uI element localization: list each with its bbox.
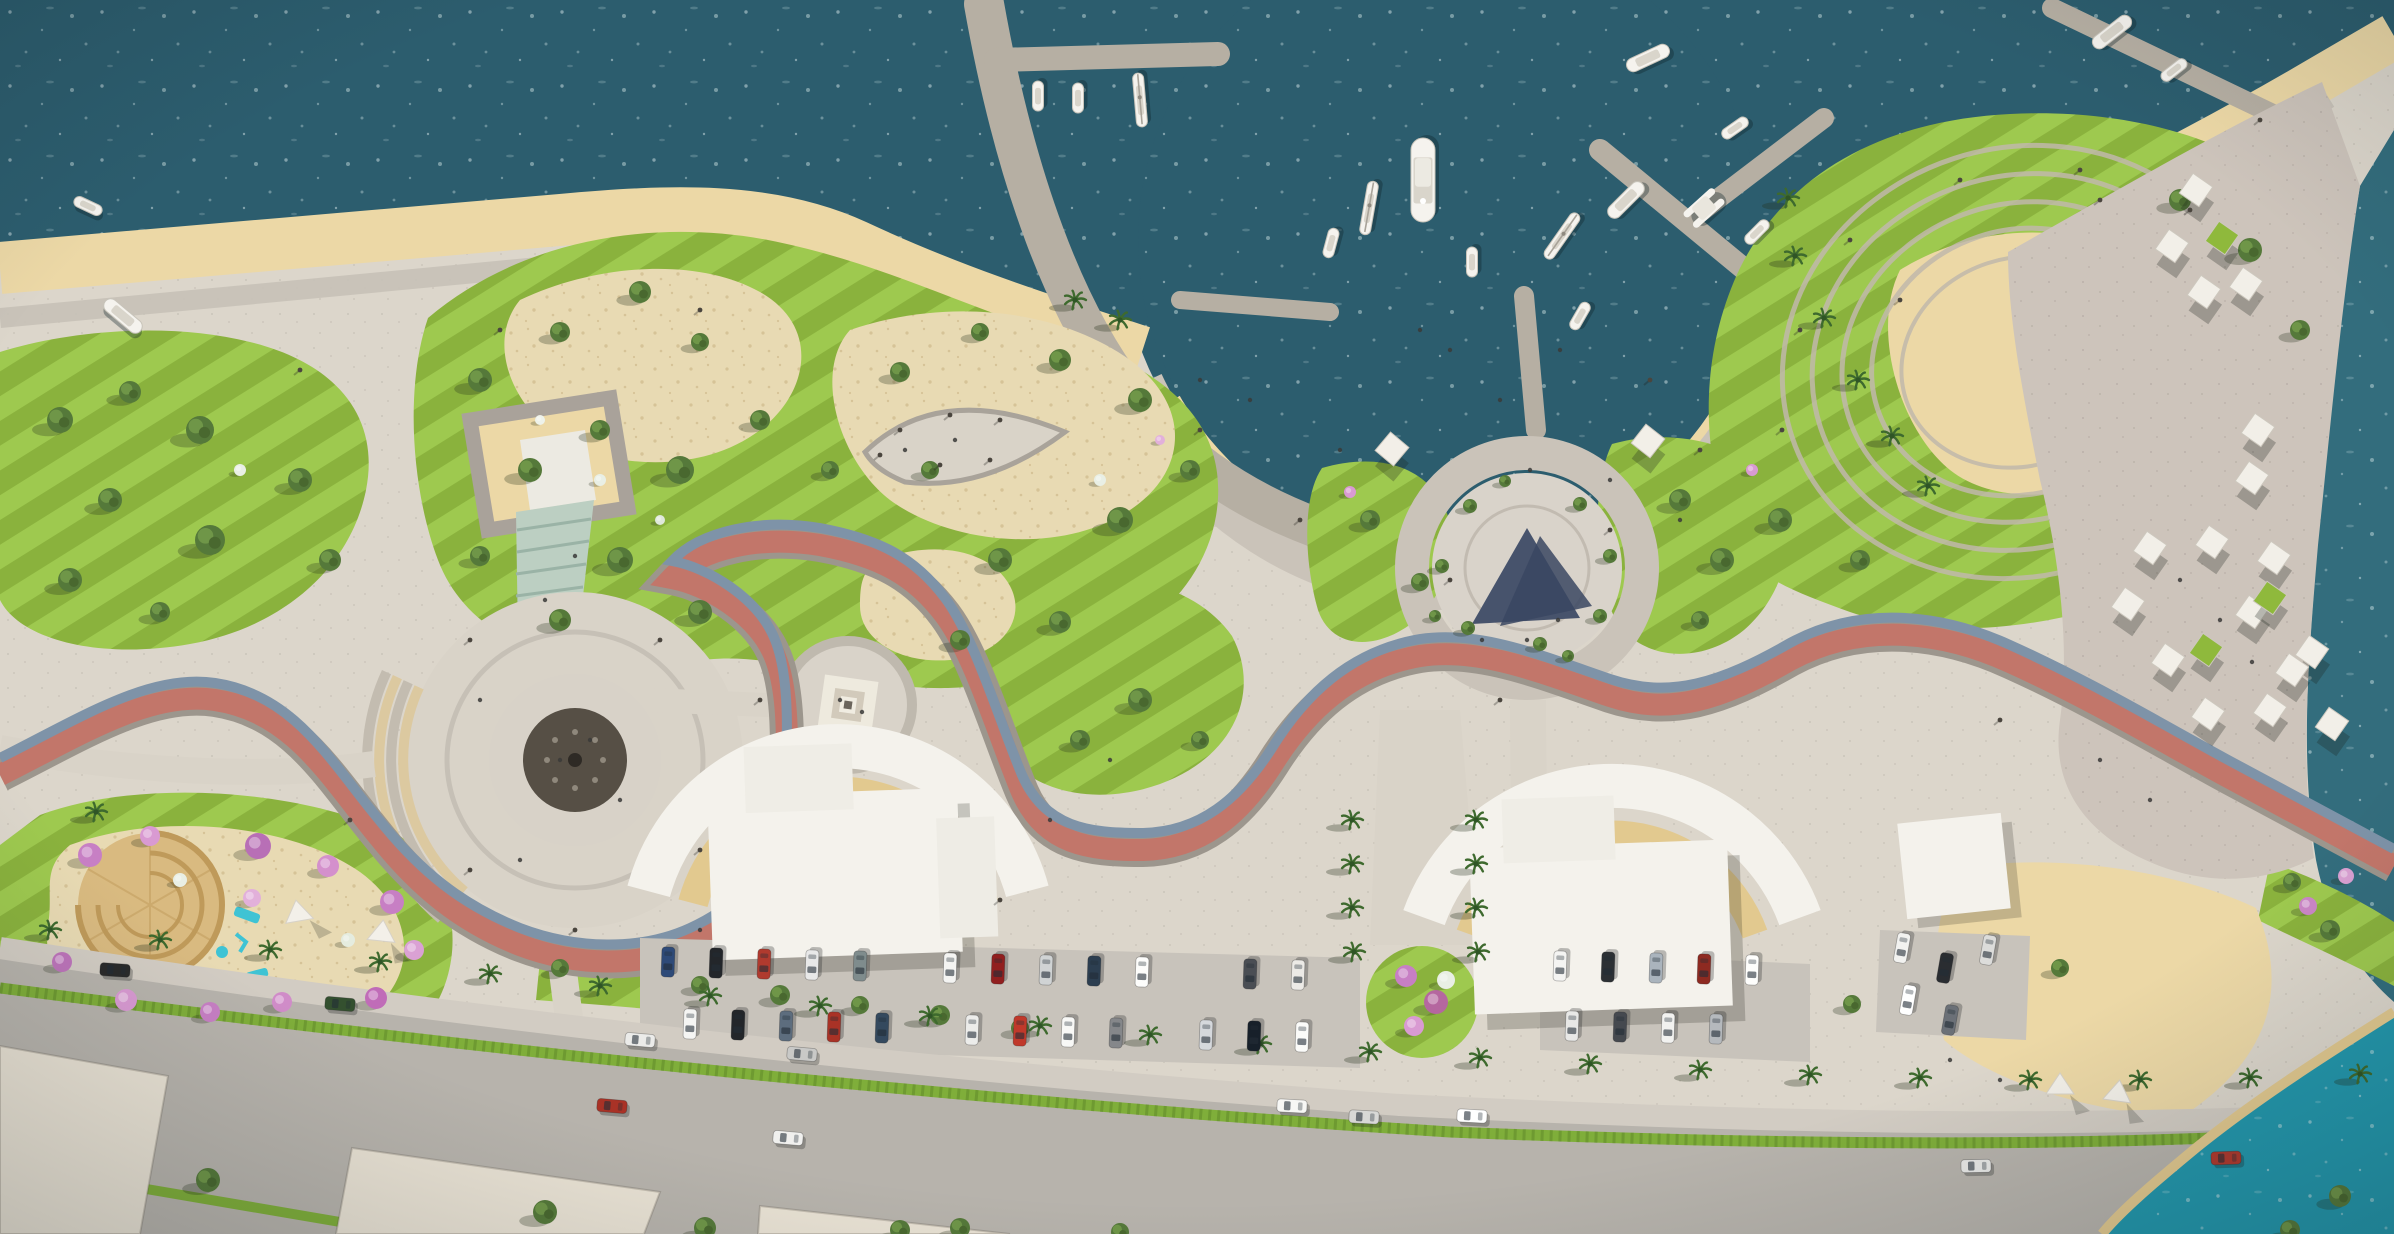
aerial-render-stage	[0, 0, 2394, 1234]
aerial-render-canvas	[0, 0, 2394, 1234]
vignette-overlay	[0, 0, 2394, 1234]
